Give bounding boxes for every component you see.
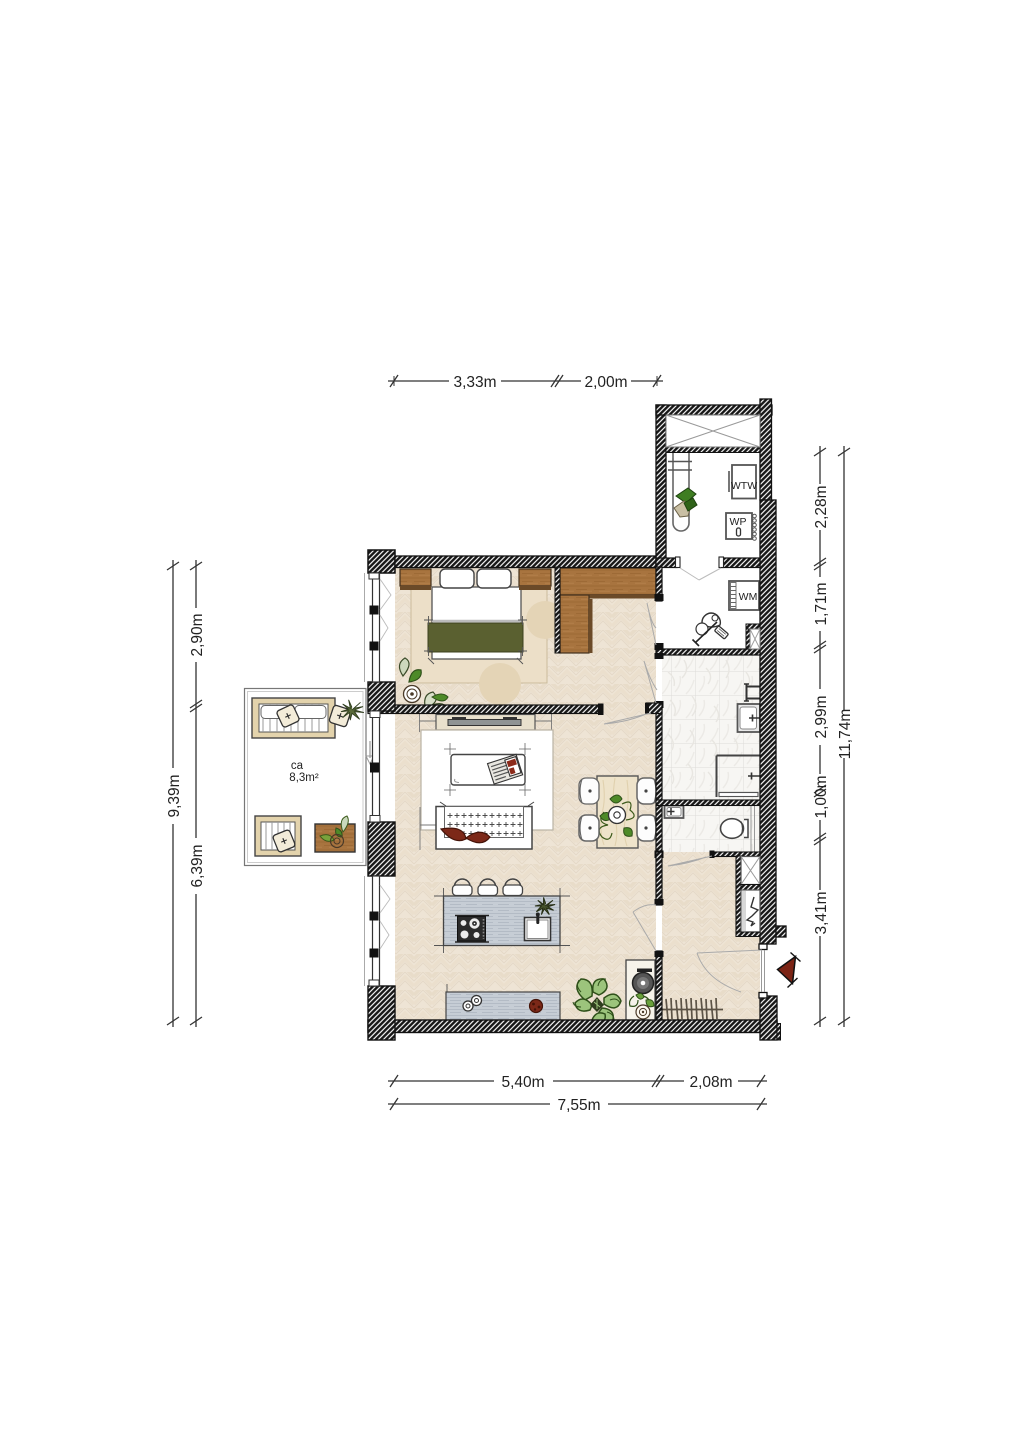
svg-text:9,39m: 9,39m [166, 774, 183, 817]
svg-text:8,3m²: 8,3m² [289, 772, 319, 784]
svg-text:7,55m: 7,55m [557, 1097, 600, 1114]
svg-text:WTW: WTW [731, 480, 757, 492]
svg-text:WM: WM [739, 591, 758, 603]
svg-text:2,90m: 2,90m [189, 613, 206, 656]
svg-text:11,74m: 11,74m [837, 709, 854, 760]
svg-text:2,08m: 2,08m [689, 1074, 732, 1091]
svg-text:5,40m: 5,40m [501, 1074, 544, 1091]
svg-text:3,41m: 3,41m [813, 891, 830, 934]
svg-text:1,00m: 1,00m [813, 775, 830, 818]
svg-text:ca: ca [291, 760, 304, 772]
svg-text:2,00m: 2,00m [584, 374, 627, 391]
svg-text:2,28m: 2,28m [813, 485, 830, 528]
svg-text:3,33m: 3,33m [453, 374, 496, 391]
svg-text:WP: WP [730, 516, 747, 528]
svg-text:1,71m: 1,71m [813, 582, 830, 625]
svg-text:6,39m: 6,39m [189, 844, 206, 887]
svg-text:2,99m: 2,99m [813, 695, 830, 738]
